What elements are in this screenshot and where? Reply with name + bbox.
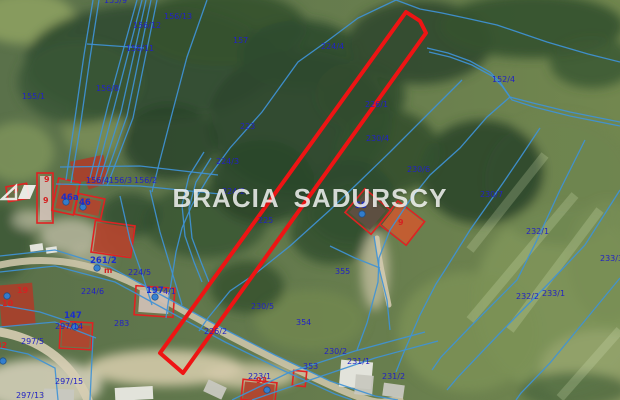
building-outline	[91, 220, 135, 257]
watermark-right: SADURSCY	[294, 183, 448, 214]
building-roof	[0, 283, 36, 328]
cadastral-boundary-line	[95, 0, 142, 180]
cadastral-map: 155/9156/13156/12156/11157156/8155/12232…	[0, 0, 620, 400]
address-point	[264, 387, 270, 393]
cadastral-boundary-line	[90, 0, 137, 178]
building-roof	[30, 243, 44, 252]
watermark: BRACIA SADURSCY	[0, 183, 620, 214]
cadastral-boundary-line	[71, 0, 99, 183]
building-outline	[241, 379, 277, 400]
cadastral-boundary-line	[429, 52, 620, 126]
cadastral-boundary-line	[166, 0, 396, 318]
cadastral-boundary-line	[189, 158, 211, 282]
cadastral-boundary-line	[66, 0, 93, 180]
cadastral-boundary-line	[516, 278, 620, 400]
cadastral-boundary-line	[330, 246, 380, 268]
address-point	[4, 293, 10, 299]
address-point	[94, 265, 100, 271]
cadastral-boundary-line	[396, 128, 540, 372]
building-roof	[382, 383, 405, 399]
address-point	[72, 324, 78, 330]
building-roof	[44, 388, 74, 400]
address-point	[0, 358, 6, 364]
address-point	[152, 294, 158, 300]
watermark-left: BRACIA	[172, 183, 279, 214]
building-roof	[203, 379, 227, 399]
cadastral-boundary-line	[447, 190, 620, 390]
cadastral-boundary-line	[0, 250, 398, 400]
cadastral-boundary-line	[103, 0, 151, 184]
building-roof	[115, 386, 154, 400]
cadastral-boundary-line	[152, 0, 207, 192]
